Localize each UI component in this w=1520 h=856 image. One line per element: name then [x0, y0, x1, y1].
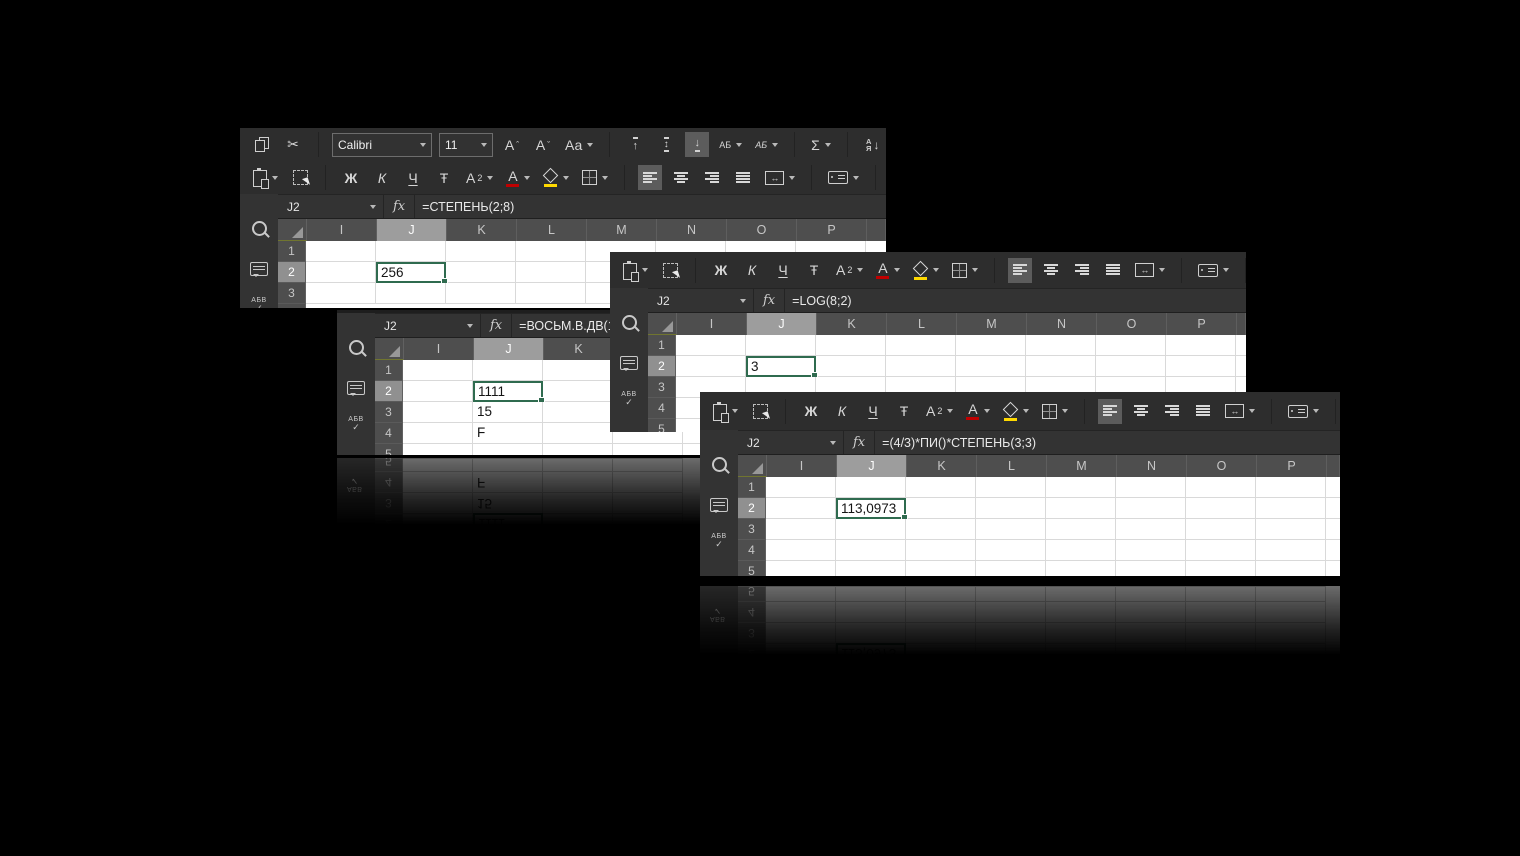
borders-button[interactable] [1039, 399, 1071, 424]
subscript-button[interactable]: А2 [923, 399, 956, 424]
cell[interactable] [1186, 540, 1256, 561]
column-header[interactable]: I [677, 313, 747, 335]
cell[interactable] [516, 283, 586, 304]
grid-row: 4 [738, 540, 1340, 561]
merge-center-button[interactable]: ↔ [762, 165, 798, 190]
spellcheck-icon[interactable]: АБВ✓ [621, 391, 636, 406]
named-ranges-button[interactable] [1195, 258, 1232, 283]
chevron-down-icon [853, 176, 859, 180]
search-icon[interactable] [712, 457, 727, 472]
cell[interactable] [543, 444, 613, 455]
ribbon-row-format-align: Ж К Ч Ŧ А2 А ↔ % [700, 392, 1340, 430]
column-header-selected[interactable]: J [747, 313, 817, 335]
marquee-select-icon [293, 170, 308, 185]
cell[interactable] [906, 498, 976, 519]
cell[interactable] [836, 519, 906, 540]
chevron-down-icon [933, 268, 939, 272]
cell[interactable] [403, 402, 473, 423]
cell[interactable] [766, 498, 836, 519]
align-middle-button[interactable]: ↕ [654, 132, 678, 157]
comment-icon[interactable] [250, 262, 268, 276]
bold-button[interactable]: Ж [339, 165, 363, 190]
grid-row-partial: 5 [738, 561, 1340, 576]
align-left-button[interactable] [638, 165, 662, 190]
strikethrough-button[interactable]: Ŧ [892, 399, 916, 424]
justify-icon [1196, 405, 1210, 417]
italic-button[interactable]: К [830, 399, 854, 424]
left-toolbar: АБВ✓ [700, 430, 738, 576]
font-color-button[interactable]: А [963, 399, 993, 424]
cell[interactable] [766, 519, 836, 540]
select-all-corner[interactable] [278, 219, 307, 241]
row-header[interactable]: 1 [648, 335, 676, 356]
underline-button[interactable]: Ч [861, 399, 885, 424]
cell-J2-selected[interactable]: 1111 [473, 381, 543, 402]
ribbon-separator [318, 132, 319, 157]
name-box[interactable]: J2 [738, 436, 843, 450]
borders-icon [582, 170, 597, 185]
borders-button[interactable] [579, 165, 611, 190]
align-center-button[interactable] [1039, 258, 1063, 283]
chevron-down-icon [524, 176, 530, 180]
desktop: ✂ Calibri 11 Аˆ Аˇ Аа ↑ ↕ ↓ АБ АБ Σ АЯ↓ … [0, 0, 1520, 856]
chevron-down-icon [642, 268, 648, 272]
formula-input[interactable]: =(4/3)*ПИ()*СТЕПЕНЬ(3;3) [875, 436, 1340, 450]
search-icon[interactable] [252, 221, 267, 236]
row-header[interactable]: 3 [278, 283, 306, 304]
cell[interactable] [976, 477, 1046, 498]
name-box[interactable]: J2 [648, 294, 753, 308]
column-header[interactable]: I [767, 455, 837, 477]
ribbon-separator [847, 132, 848, 157]
select-all-corner[interactable] [375, 338, 404, 360]
row-header-selected[interactable]: 2 [375, 381, 403, 402]
paste-icon [253, 170, 267, 187]
select-button[interactable] [288, 165, 312, 190]
cell[interactable] [676, 335, 746, 356]
column-header[interactable]: I [404, 338, 474, 360]
cell[interactable] [1096, 356, 1166, 377]
spellcheck-icon: АБВ✓ [347, 477, 362, 492]
paste-button[interactable] [710, 399, 741, 424]
cell[interactable] [956, 335, 1026, 356]
align-right-button[interactable] [1160, 399, 1184, 424]
named-ranges-button[interactable] [825, 165, 862, 190]
chevron-down-icon [732, 409, 738, 413]
scissors-icon: ✂ [287, 136, 299, 153]
column-header[interactable]: N [657, 219, 727, 241]
cell-J2-selected[interactable]: 3 [746, 356, 816, 377]
cell[interactable] [976, 561, 1046, 576]
ribbon-row-format-align: Ж К Ч Ŧ А2 А ↔ % [610, 252, 1246, 288]
row-header[interactable]: 3 [648, 377, 676, 398]
cell[interactable] [1186, 519, 1256, 540]
text-orientation-button[interactable]: АБ [716, 132, 745, 157]
cell[interactable] [676, 356, 746, 377]
cell[interactable] [446, 241, 516, 262]
row-header-selected[interactable]: 2 [738, 498, 766, 519]
paste-button[interactable] [250, 165, 281, 190]
row-header-selected[interactable]: 2 [648, 356, 676, 377]
name-box[interactable]: J2 [278, 200, 383, 214]
column-header [1237, 313, 1246, 335]
align-top-icon: ↑ [633, 137, 639, 152]
ribbon-separator [1335, 399, 1336, 424]
fill-color-button[interactable] [540, 165, 572, 190]
column-header[interactable]: M [587, 219, 657, 241]
cell[interactable] [906, 477, 976, 498]
ribbon-separator [785, 399, 786, 424]
column-header[interactable]: K [907, 455, 977, 477]
fill-color-button[interactable] [910, 258, 942, 283]
merge-center-button[interactable]: ↔ [1132, 258, 1168, 283]
select-all-corner[interactable] [648, 313, 677, 335]
cell [1326, 561, 1340, 576]
cell[interactable] [1046, 519, 1116, 540]
tag-icon [828, 171, 848, 184]
underline-button[interactable]: Ч [771, 258, 795, 283]
reflection-window-4: АБВ✓ 2 113,0973 3 4 5 [700, 586, 1340, 664]
copy-button[interactable] [250, 132, 274, 157]
paint-bucket-icon [1003, 402, 1018, 421]
borders-button[interactable] [949, 258, 981, 283]
cell[interactable] [886, 335, 956, 356]
formula-input[interactable]: =LOG(8;2) [785, 294, 1246, 308]
cell[interactable] [473, 360, 543, 381]
cell[interactable] [1116, 561, 1186, 576]
column-header[interactable]: O [1097, 313, 1167, 335]
cell[interactable] [403, 423, 473, 444]
formula-input[interactable]: =СТЕПЕНЬ(2;8) [415, 200, 886, 214]
bold-button[interactable]: Ж [709, 258, 733, 283]
justify-button[interactable] [1101, 258, 1125, 283]
caret-up-icon: ˆ [516, 140, 519, 150]
cell[interactable] [1186, 498, 1256, 519]
row-header[interactable]: 3 [375, 402, 403, 423]
ribbon-separator [695, 258, 696, 283]
column-header[interactable]: P [797, 219, 867, 241]
grid-row: 3 [738, 519, 1340, 540]
underline-button[interactable]: Ч [401, 165, 425, 190]
merge-cells-icon: ↔ [765, 171, 784, 185]
align-left-button[interactable] [1008, 258, 1032, 283]
grid-row: 2 3 [648, 356, 1246, 377]
cell[interactable] [906, 540, 976, 561]
chevron-down-icon [1249, 409, 1255, 413]
cell[interactable] [886, 356, 956, 377]
strikethrough-button[interactable]: Ŧ [802, 258, 826, 283]
cell[interactable] [516, 241, 586, 262]
cell[interactable] [543, 360, 613, 381]
cell[interactable] [766, 561, 836, 576]
cell[interactable] [543, 381, 613, 402]
cell[interactable] [376, 283, 446, 304]
left-toolbar: АБВ✓ [610, 288, 648, 432]
row-header[interactable]: 4 [738, 540, 766, 561]
ribbon-separator [811, 165, 812, 190]
cell[interactable] [976, 540, 1046, 561]
comment-icon[interactable] [710, 498, 728, 512]
chevron-down-icon [467, 324, 473, 328]
cell[interactable] [403, 360, 473, 381]
column-header[interactable]: L [977, 455, 1047, 477]
column-header[interactable]: K [544, 338, 614, 360]
spellcheck-icon[interactable]: АБВ✓ [348, 416, 363, 431]
cell[interactable] [1116, 477, 1186, 498]
cell[interactable] [306, 262, 376, 283]
row-header[interactable]: 5 [375, 444, 403, 455]
font-color-button[interactable]: А [873, 258, 903, 283]
italic-button[interactable]: К [370, 165, 394, 190]
merge-center-button[interactable]: ↔ [1222, 399, 1258, 424]
grid-row: 1 [648, 335, 1246, 356]
spellcheck-icon[interactable]: АБВ✓ [711, 533, 726, 548]
row-header[interactable]: 1 [375, 360, 403, 381]
cell[interactable] [403, 381, 473, 402]
chevron-down-icon [481, 143, 487, 147]
cell-J4[interactable]: F [473, 423, 543, 444]
cell[interactable] [613, 444, 683, 455]
name-box[interactable]: J2 [375, 319, 480, 333]
row-header[interactable]: 1 [278, 241, 306, 262]
row-header[interactable]: 4 [375, 423, 403, 444]
column-header-selected[interactable]: J [474, 338, 544, 360]
cell[interactable] [403, 444, 473, 455]
column-headers: I J K L M N O P [278, 219, 886, 241]
cell[interactable] [1256, 477, 1326, 498]
cell-J3[interactable]: 15 [473, 402, 543, 423]
cell[interactable] [1166, 335, 1236, 356]
cell[interactable] [766, 540, 836, 561]
cell[interactable] [766, 477, 836, 498]
chevron-down-icon [420, 143, 426, 147]
align-left-icon [1103, 405, 1117, 417]
cut-button[interactable]: ✂ [281, 132, 305, 157]
chevron-down-icon [602, 176, 608, 180]
comment-icon[interactable] [347, 381, 365, 395]
reflection-left-toolbar: АБВ✓ [337, 458, 375, 534]
left-toolbar: АБВ✓ [337, 313, 375, 455]
fx-icon: fx [753, 289, 785, 312]
column-header[interactable]: M [1047, 455, 1117, 477]
chevron-down-icon [487, 176, 493, 180]
font-color-icon: А [506, 169, 519, 187]
cell[interactable] [1256, 561, 1326, 576]
align-center-icon [1044, 264, 1058, 276]
justify-button[interactable] [1191, 399, 1215, 424]
cell[interactable] [836, 540, 906, 561]
column-header[interactable]: K [447, 219, 517, 241]
row-header[interactable]: 1 [738, 477, 766, 498]
align-bottom-button[interactable]: ↓ [685, 132, 709, 157]
chevron-down-icon [894, 268, 900, 272]
autosum-button[interactable]: Σ [808, 132, 834, 157]
row-header-selected[interactable]: 2 [278, 262, 306, 283]
cell[interactable] [956, 356, 1026, 377]
formula-bar: J2 fx =СТЕПЕНЬ(2;8) [278, 194, 886, 219]
align-right-button[interactable] [700, 165, 724, 190]
font-name-select[interactable]: Calibri [332, 133, 432, 157]
cell[interactable] [746, 335, 816, 356]
column-header[interactable]: O [727, 219, 797, 241]
wrap-text-button[interactable]: АБ [752, 132, 781, 157]
strikethrough-button[interactable]: Ŧ [432, 165, 456, 190]
fill-color-button[interactable] [1000, 399, 1032, 424]
cell [1326, 498, 1340, 519]
cell[interactable] [543, 402, 613, 423]
cell[interactable] [906, 561, 976, 576]
orientation-icon: АБ [719, 140, 731, 150]
cell[interactable] [816, 356, 886, 377]
cell[interactable] [1116, 498, 1186, 519]
subscript-button[interactable]: А2 [463, 165, 496, 190]
cell[interactable] [1116, 519, 1186, 540]
ribbon-separator [1245, 258, 1246, 283]
cell[interactable] [1256, 540, 1326, 561]
align-left-icon [1013, 264, 1027, 276]
cell[interactable] [446, 262, 516, 283]
cell[interactable] [306, 241, 376, 262]
cell[interactable] [516, 262, 586, 283]
cell[interactable] [836, 561, 906, 576]
align-center-button[interactable] [669, 165, 693, 190]
subscript-button[interactable]: А2 [833, 258, 866, 283]
column-header[interactable]: L [517, 219, 587, 241]
cell[interactable] [473, 444, 543, 455]
named-ranges-button[interactable] [1285, 399, 1322, 424]
column-header[interactable]: P [1257, 455, 1327, 477]
chevron-down-icon [857, 268, 863, 272]
justify-icon [736, 172, 750, 184]
cell[interactable] [1186, 477, 1256, 498]
align-right-button[interactable] [1070, 258, 1094, 283]
tag-icon [1198, 264, 1218, 277]
cell[interactable] [1046, 498, 1116, 519]
cell-J2-selected[interactable]: 256 [376, 262, 446, 283]
row-header[interactable]: 5 [648, 419, 676, 432]
cell[interactable] [1026, 335, 1096, 356]
cell[interactable] [446, 283, 516, 304]
chevron-down-icon [1313, 409, 1319, 413]
justify-button[interactable] [731, 165, 755, 190]
ribbon-separator [325, 165, 326, 190]
column-header[interactable]: O [1187, 455, 1257, 477]
align-left-button[interactable] [1098, 399, 1122, 424]
column-header[interactable]: I [307, 219, 377, 241]
comment-icon[interactable] [620, 356, 638, 370]
cell [1236, 356, 1246, 377]
column-header[interactable]: P [1167, 313, 1237, 335]
align-center-button[interactable] [1129, 399, 1153, 424]
column-header[interactable]: M [957, 313, 1027, 335]
ribbon-separator [1084, 399, 1085, 424]
cell-J2-selected[interactable]: 113,0973 [836, 498, 906, 519]
column-header-selected[interactable]: J [837, 455, 907, 477]
cell[interactable] [1096, 335, 1166, 356]
cell[interactable] [1186, 561, 1256, 576]
row-header[interactable]: 4 [648, 398, 676, 419]
select-button[interactable] [658, 258, 682, 283]
cell[interactable] [976, 498, 1046, 519]
ribbon-separator [1271, 399, 1272, 424]
chevron-down-icon [1062, 409, 1068, 413]
row-header[interactable]: 5 [738, 561, 766, 576]
cell[interactable] [543, 423, 613, 444]
chevron-down-icon [1023, 409, 1029, 413]
change-case-button[interactable]: Аа [562, 132, 596, 157]
column-header-selected[interactable]: J [377, 219, 447, 241]
paste-button[interactable] [620, 258, 651, 283]
column-header [867, 219, 886, 241]
grid-row: 2 113,0973 [738, 498, 1340, 519]
fx-icon: fx [480, 314, 512, 337]
column-header[interactable]: N [1117, 455, 1187, 477]
cell[interactable] [1116, 540, 1186, 561]
align-top-button[interactable]: ↑ [623, 132, 647, 157]
search-icon[interactable] [622, 315, 637, 330]
cell [1326, 477, 1340, 498]
chevron-down-icon [563, 176, 569, 180]
select-all-corner[interactable] [738, 455, 767, 477]
chevron-down-icon [272, 176, 278, 180]
cell[interactable] [1166, 356, 1236, 377]
font-size-select[interactable]: 11 [439, 133, 493, 157]
font-color-icon: А [876, 261, 889, 279]
cell[interactable] [1046, 540, 1116, 561]
bold-button[interactable]: Ж [799, 399, 823, 424]
align-left-icon [643, 172, 657, 184]
ribbon-separator [624, 165, 625, 190]
cell[interactable] [1256, 498, 1326, 519]
cell[interactable] [1256, 519, 1326, 540]
row-header[interactable]: 3 [738, 519, 766, 540]
reflection-left-toolbar: АБВ✓ [700, 586, 738, 664]
font-color-button[interactable]: А [503, 165, 533, 190]
caret-down-icon: ˇ [547, 140, 550, 150]
merge-cells-icon: ↔ [1225, 404, 1244, 418]
grow-font-button[interactable]: Аˆ [500, 132, 524, 157]
cell[interactable] [1026, 356, 1096, 377]
chevron-down-icon [772, 143, 778, 147]
chevron-down-icon [1223, 268, 1229, 272]
font-size-value: 11 [445, 138, 457, 152]
cell[interactable] [1046, 561, 1116, 576]
cell[interactable] [816, 335, 886, 356]
cell[interactable] [306, 283, 376, 304]
italic-button[interactable]: К [740, 258, 764, 283]
cell[interactable] [1046, 477, 1116, 498]
shrink-font-button[interactable]: Аˇ [531, 132, 555, 157]
column-header[interactable]: K [817, 313, 887, 335]
spellcheck-icon[interactable]: АБВ✓ [251, 297, 266, 308]
cell [1236, 335, 1246, 356]
chevron-down-icon [825, 143, 831, 147]
select-button[interactable] [748, 399, 772, 424]
column-header[interactable]: N [1027, 313, 1097, 335]
sort-ascending-button[interactable]: АЯ↓ [861, 132, 885, 157]
font-name-value: Calibri [338, 138, 372, 152]
cell[interactable] [976, 519, 1046, 540]
cell[interactable] [836, 477, 906, 498]
search-icon[interactable] [349, 340, 364, 355]
cell[interactable] [906, 519, 976, 540]
worksheet-grid: I J K L M N O P 1 2 [738, 455, 1340, 576]
column-header[interactable]: L [887, 313, 957, 335]
align-right-icon [1165, 405, 1179, 417]
tag-icon [1288, 405, 1308, 418]
cell[interactable] [376, 241, 446, 262]
reflection-window-2: АБВ✓ 2 1111 3 15 4 F 5 [337, 458, 707, 534]
